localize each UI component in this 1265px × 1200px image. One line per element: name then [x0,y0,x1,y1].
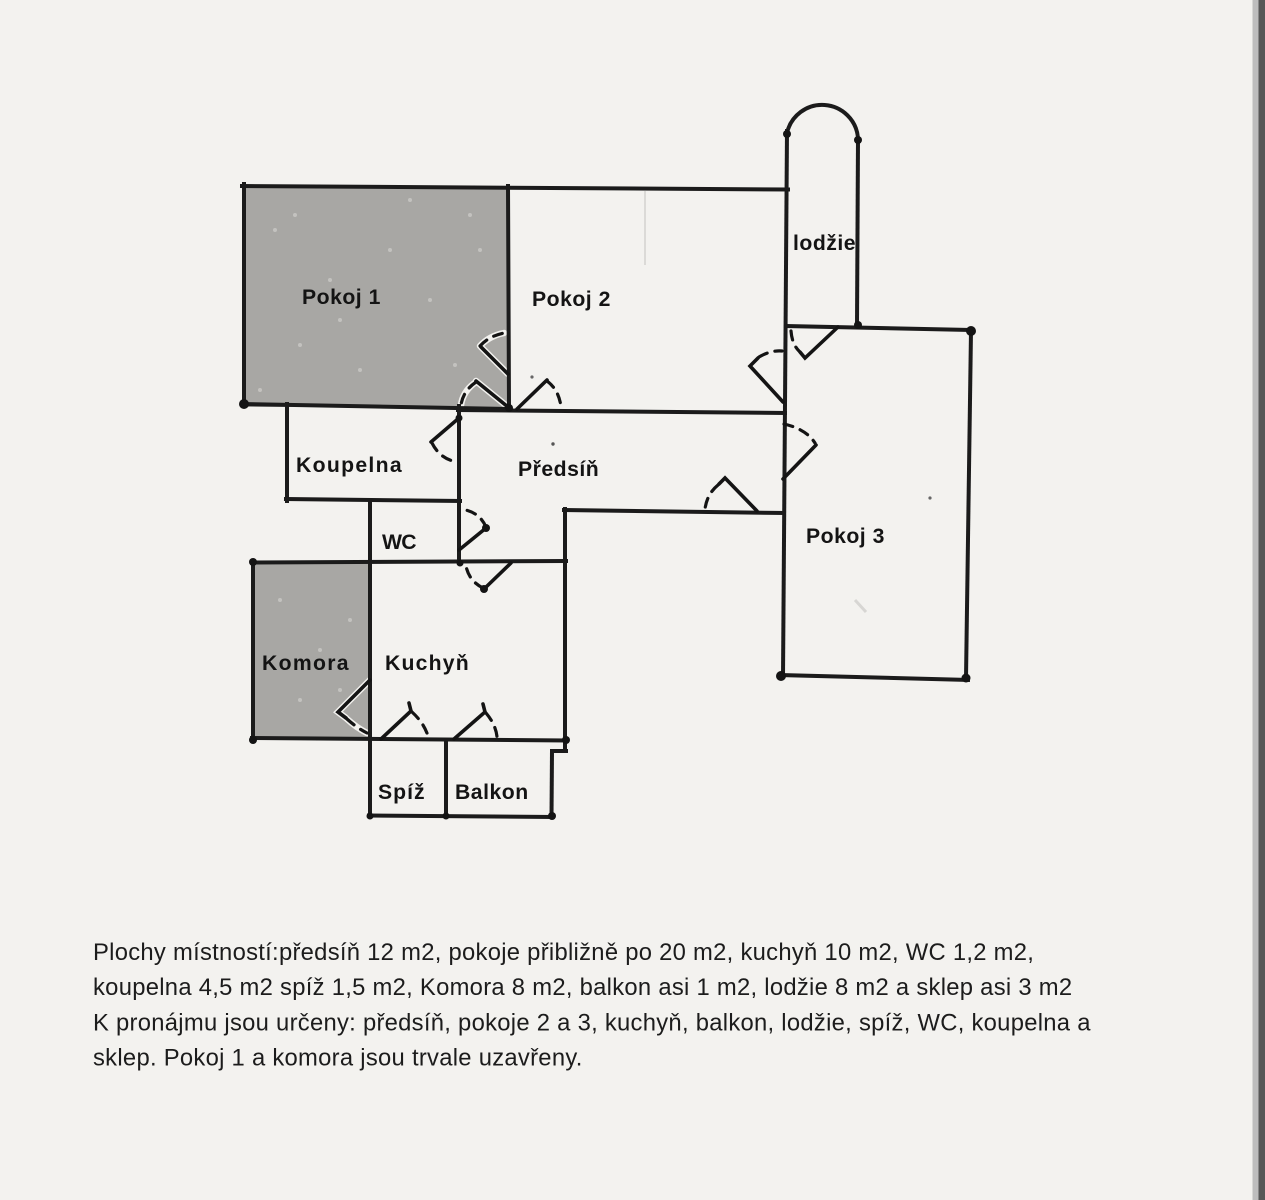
svg-text:WC: WC [382,531,416,554]
svg-text:koupelna 4,5 m2 spíž 1,5 m2, K: koupelna 4,5 m2 spíž 1,5 m2, Komora 8 m2… [93,974,1072,1001]
svg-text:lodžie: lodžie [793,232,856,255]
svg-text:sklep. Pokoj 1 a komora jsou t: sklep. Pokoj 1 a komora jsou trvale uzav… [93,1045,583,1072]
svg-text:Pokoj 3: Pokoj 3 [806,525,885,548]
svg-text:Spíž: Spíž [378,781,426,804]
svg-text:Koupelna: Koupelna [296,454,403,477]
svg-text:Kuchyň: Kuchyň [385,652,470,675]
svg-text:Pokoj 2: Pokoj 2 [532,288,611,311]
svg-text:Předsíň: Předsíň [518,458,599,481]
svg-text:Komora: Komora [262,652,350,675]
svg-text:Plochy místností:předsíň 12 m2: Plochy místností:předsíň 12 m2, pokoje p… [93,939,1034,966]
svg-text:K pronájmu jsou určeny: předsí: K pronájmu jsou určeny: předsíň, pokoje … [93,1010,1091,1037]
svg-text:Balkon: Balkon [455,781,529,804]
svg-text:Pokoj 1: Pokoj 1 [302,286,381,309]
